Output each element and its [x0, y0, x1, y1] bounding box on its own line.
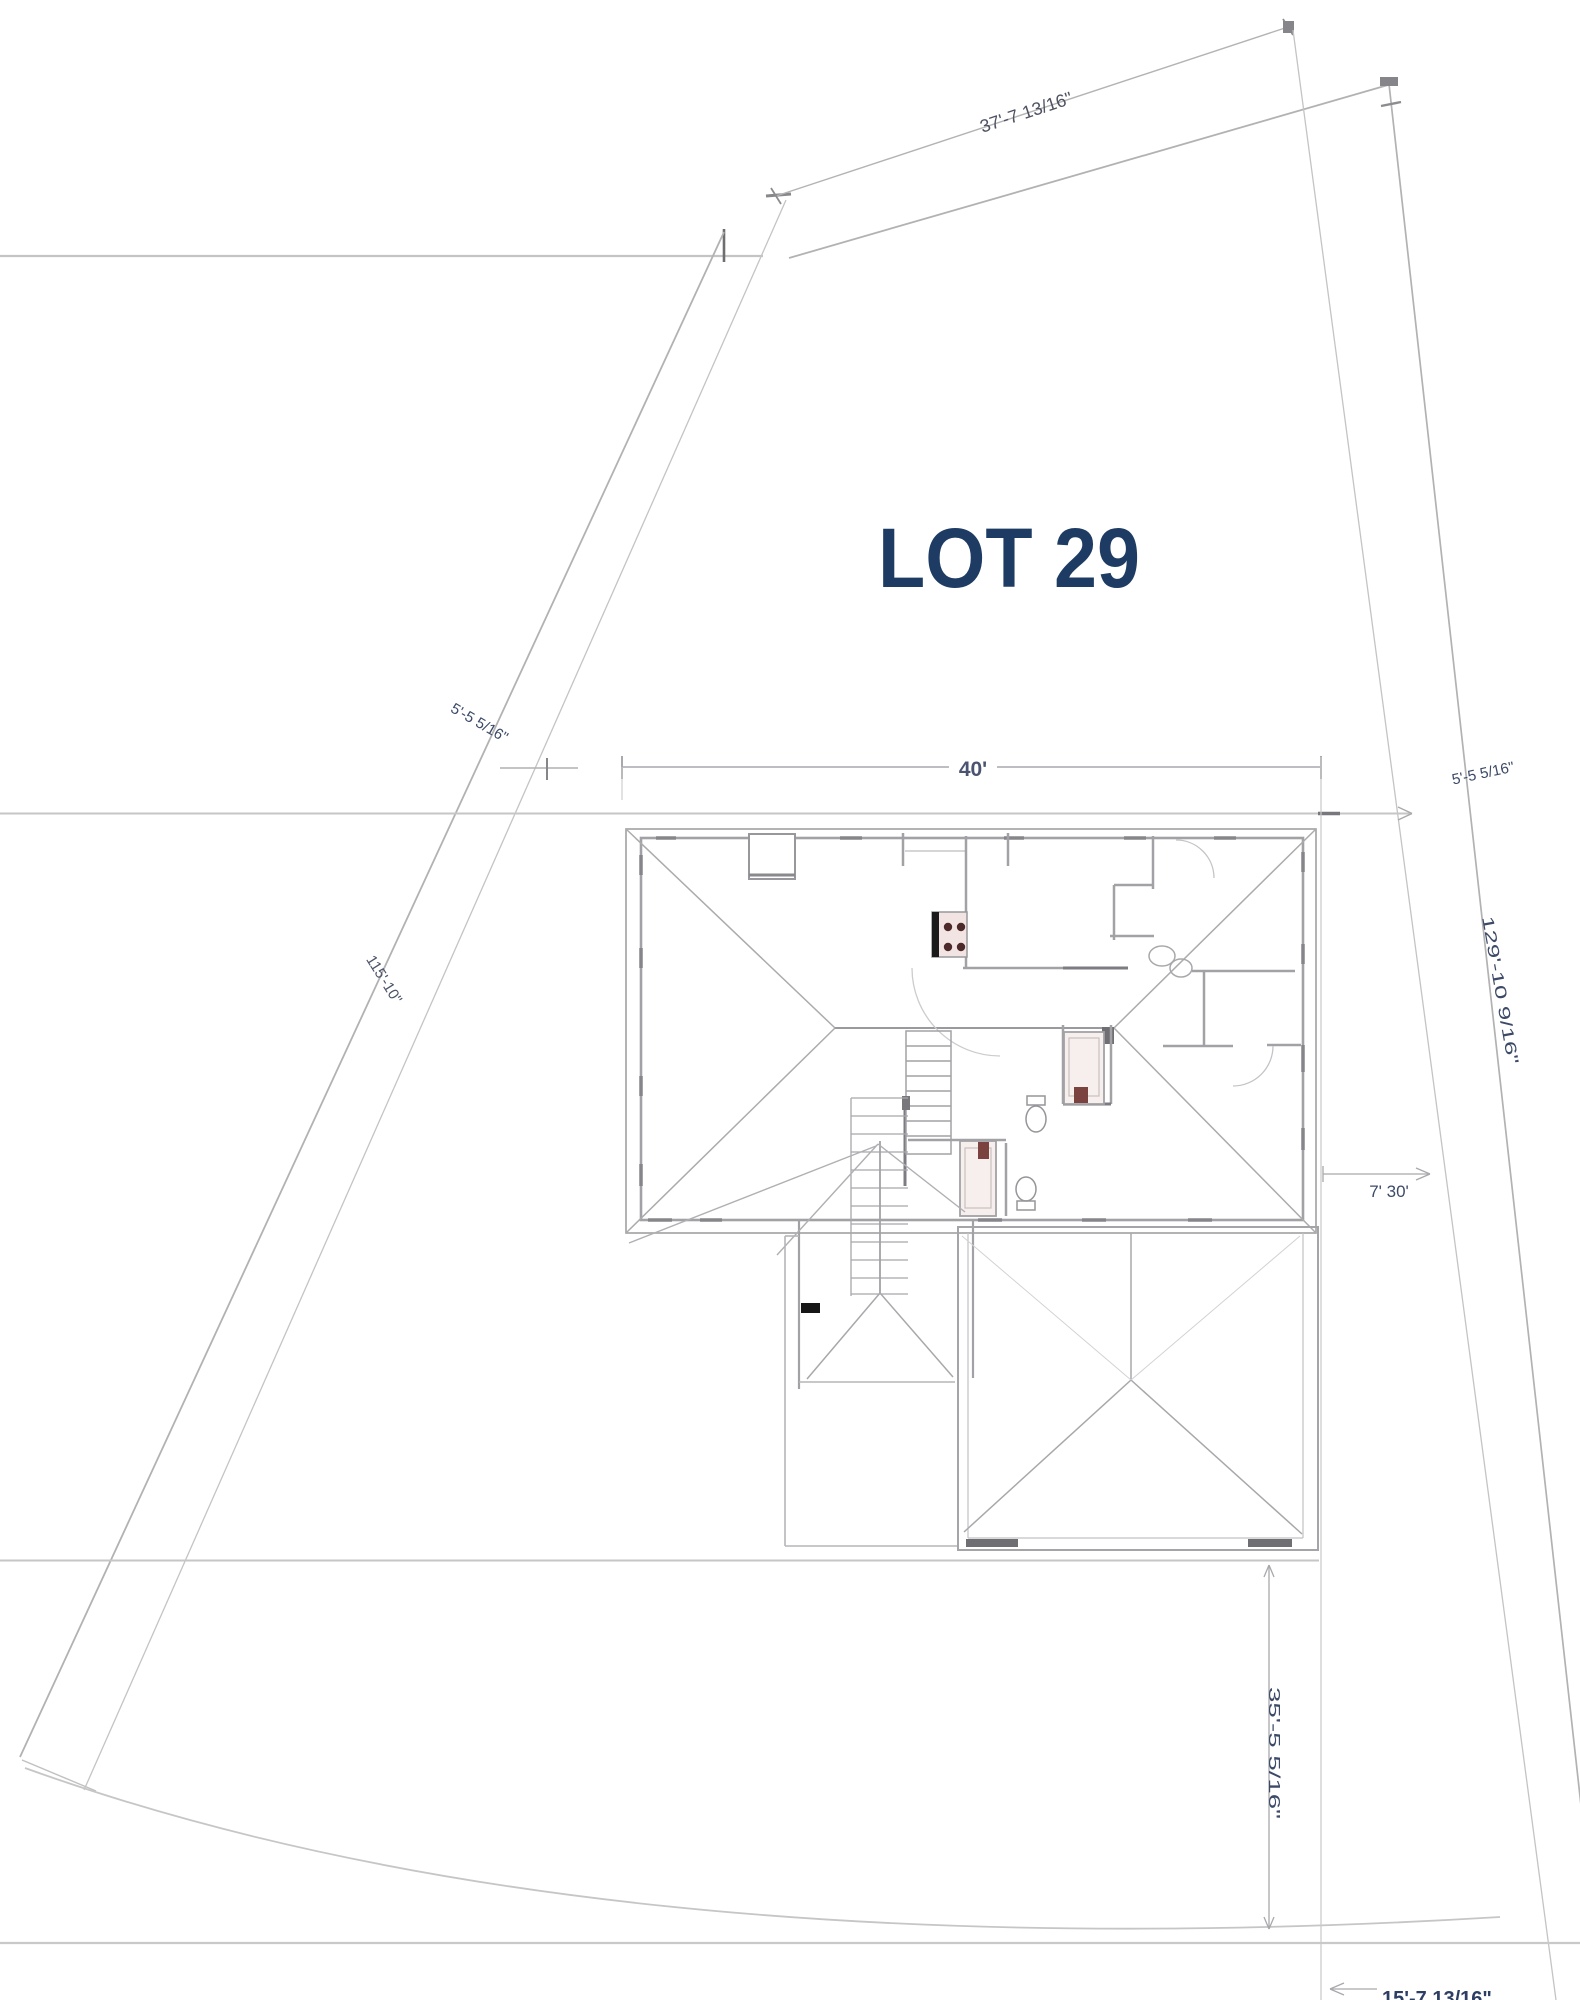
- svg-text:7' 30': 7' 30': [1369, 1182, 1409, 1201]
- svg-text:15'-7 13/16": 15'-7 13/16": [1382, 1988, 1492, 2000]
- svg-text:35'-5 5/16": 35'-5 5/16": [1265, 1687, 1282, 1819]
- svg-text:40': 40': [959, 758, 987, 781]
- svg-text:LOT 29: LOT 29: [878, 511, 1140, 605]
